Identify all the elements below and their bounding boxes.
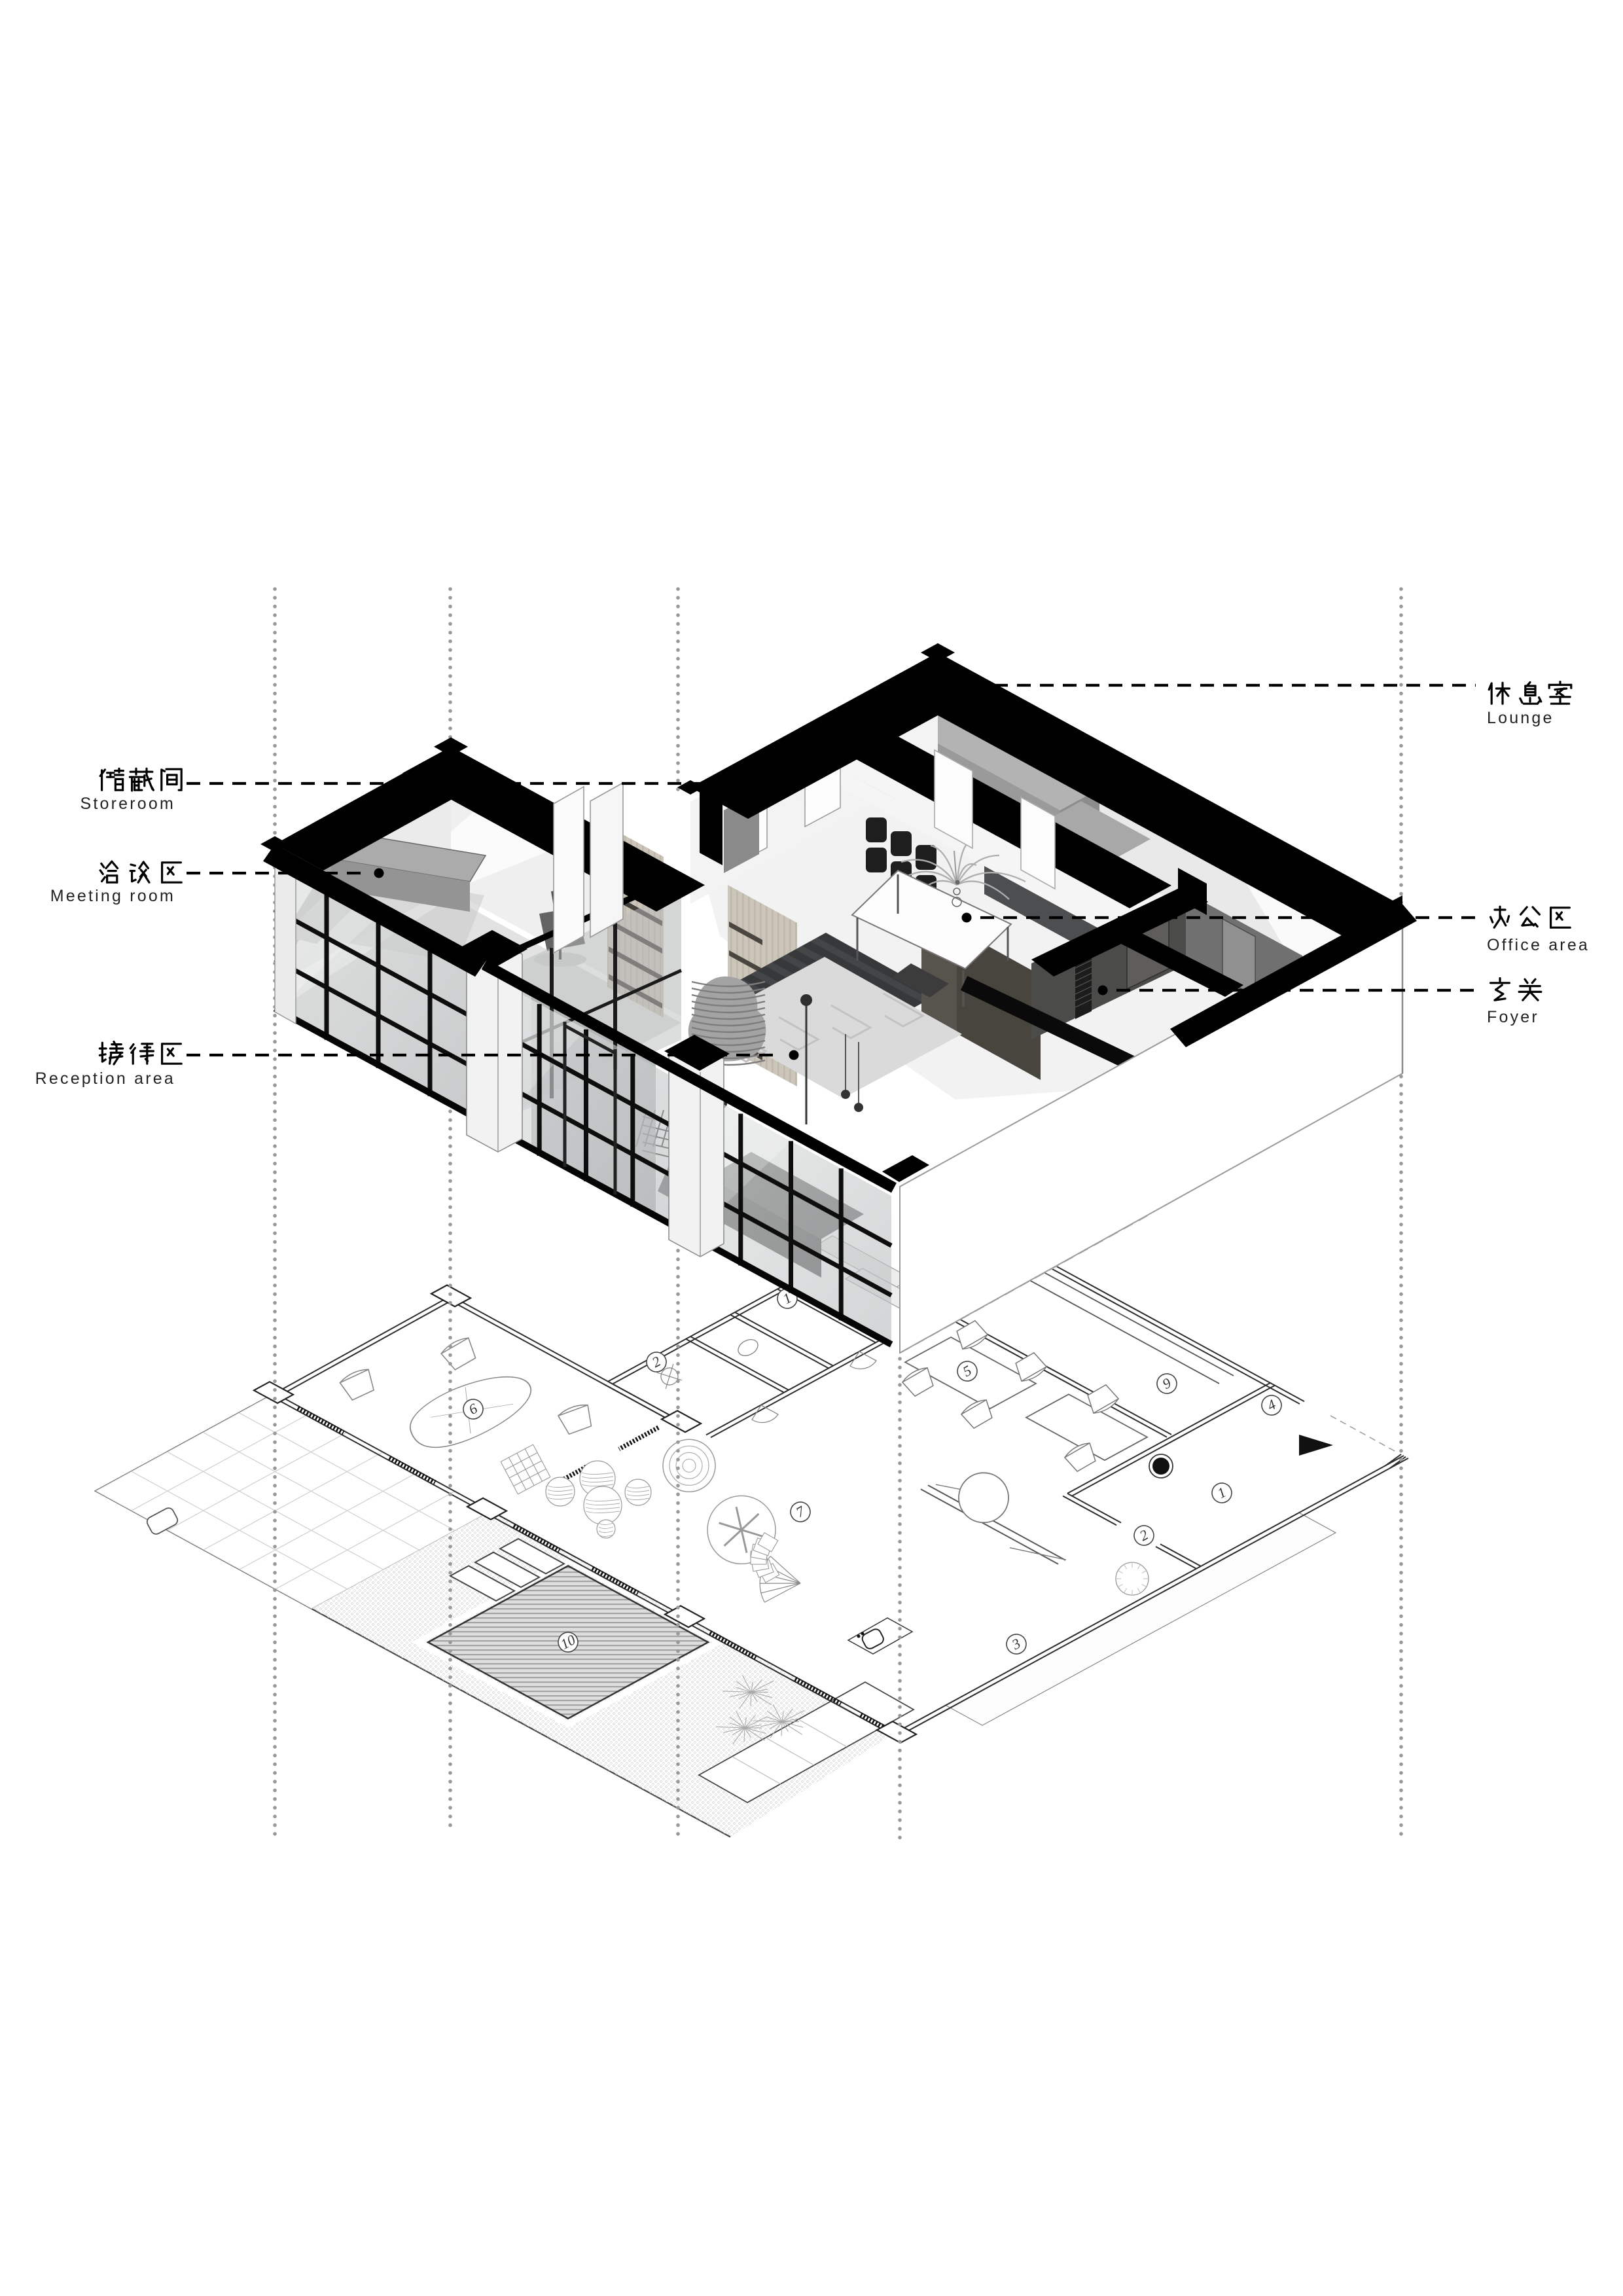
svg-text:Foyer: Foyer <box>1487 1008 1539 1026</box>
svg-text:Meeting room: Meeting room <box>50 887 175 905</box>
svg-text:Office area: Office area <box>1487 936 1590 954</box>
svg-text:Lounge: Lounge <box>1487 709 1554 727</box>
svg-text:Storeroom: Storeroom <box>80 795 175 813</box>
svg-text:Reception area: Reception area <box>35 1069 175 1088</box>
